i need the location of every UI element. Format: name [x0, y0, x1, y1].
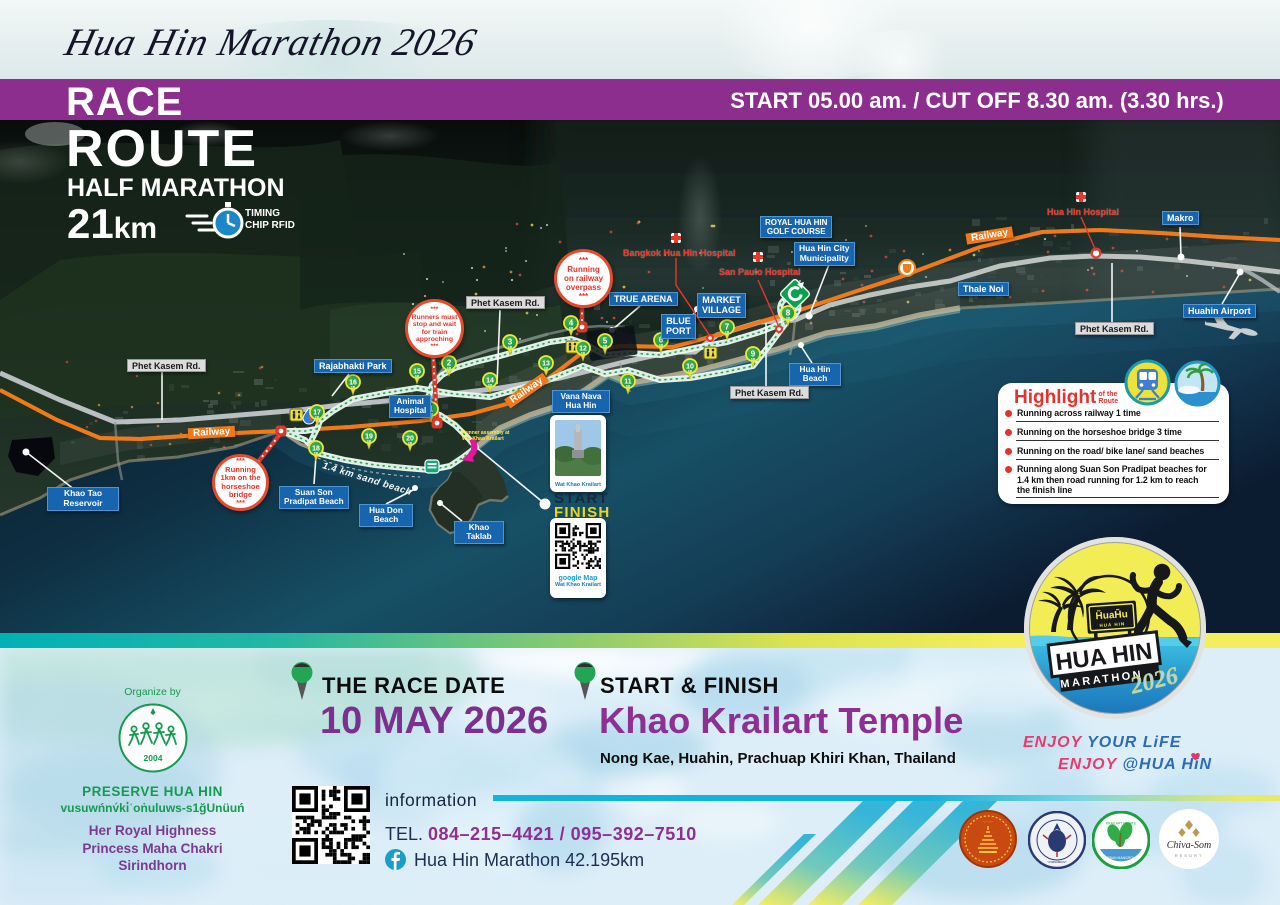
svg-text:KRAILART NIWATE: KRAILART NIWATE	[1106, 822, 1137, 826]
svg-text:KM: KM	[544, 366, 548, 370]
svg-text:KM: KM	[581, 351, 585, 355]
svg-text:KM: KM	[408, 441, 412, 445]
svg-text:KM: KM	[786, 316, 790, 320]
svg-text:Wat Khao Krailart: Wat Khao Krailart	[462, 436, 504, 442]
svg-text:KM: KM	[688, 369, 692, 373]
svg-text:KM: KM	[508, 345, 512, 349]
svg-text:KM: KM	[488, 383, 492, 387]
svg-text:2004: 2004	[143, 753, 162, 763]
svg-text:·:·:·:·:·: ·:·:·:·:·	[982, 819, 993, 824]
svg-text:KM: KM	[569, 326, 573, 330]
svg-text:CHIP RFID: CHIP RFID	[245, 220, 295, 231]
svg-text:RESORT: RESORT	[1175, 853, 1204, 858]
svg-text:TIMING: TIMING	[245, 208, 280, 219]
svg-text:KM: KM	[351, 385, 355, 389]
svg-text:KM: KM	[603, 344, 607, 348]
svg-text:KM: KM	[447, 366, 451, 370]
svg-text:URBAN MANGROVE: URBAN MANGROVE	[1105, 856, 1138, 860]
svg-text:KM: KM	[367, 439, 371, 443]
svg-text:·ınαυαικ̇oν·: ·ınαυαικ̇oν·	[1047, 859, 1067, 864]
svg-text:KM: KM	[725, 330, 729, 334]
svg-text:KM: KM	[415, 374, 419, 378]
svg-text:KM: KM	[315, 415, 319, 419]
svg-text:KM: KM	[659, 343, 663, 347]
svg-text:KM: KM	[314, 451, 318, 455]
svg-text:KM: KM	[626, 384, 630, 388]
svg-text:KM: KM	[751, 357, 755, 361]
svg-text:Chiva-Som: Chiva-Som	[1167, 840, 1211, 851]
